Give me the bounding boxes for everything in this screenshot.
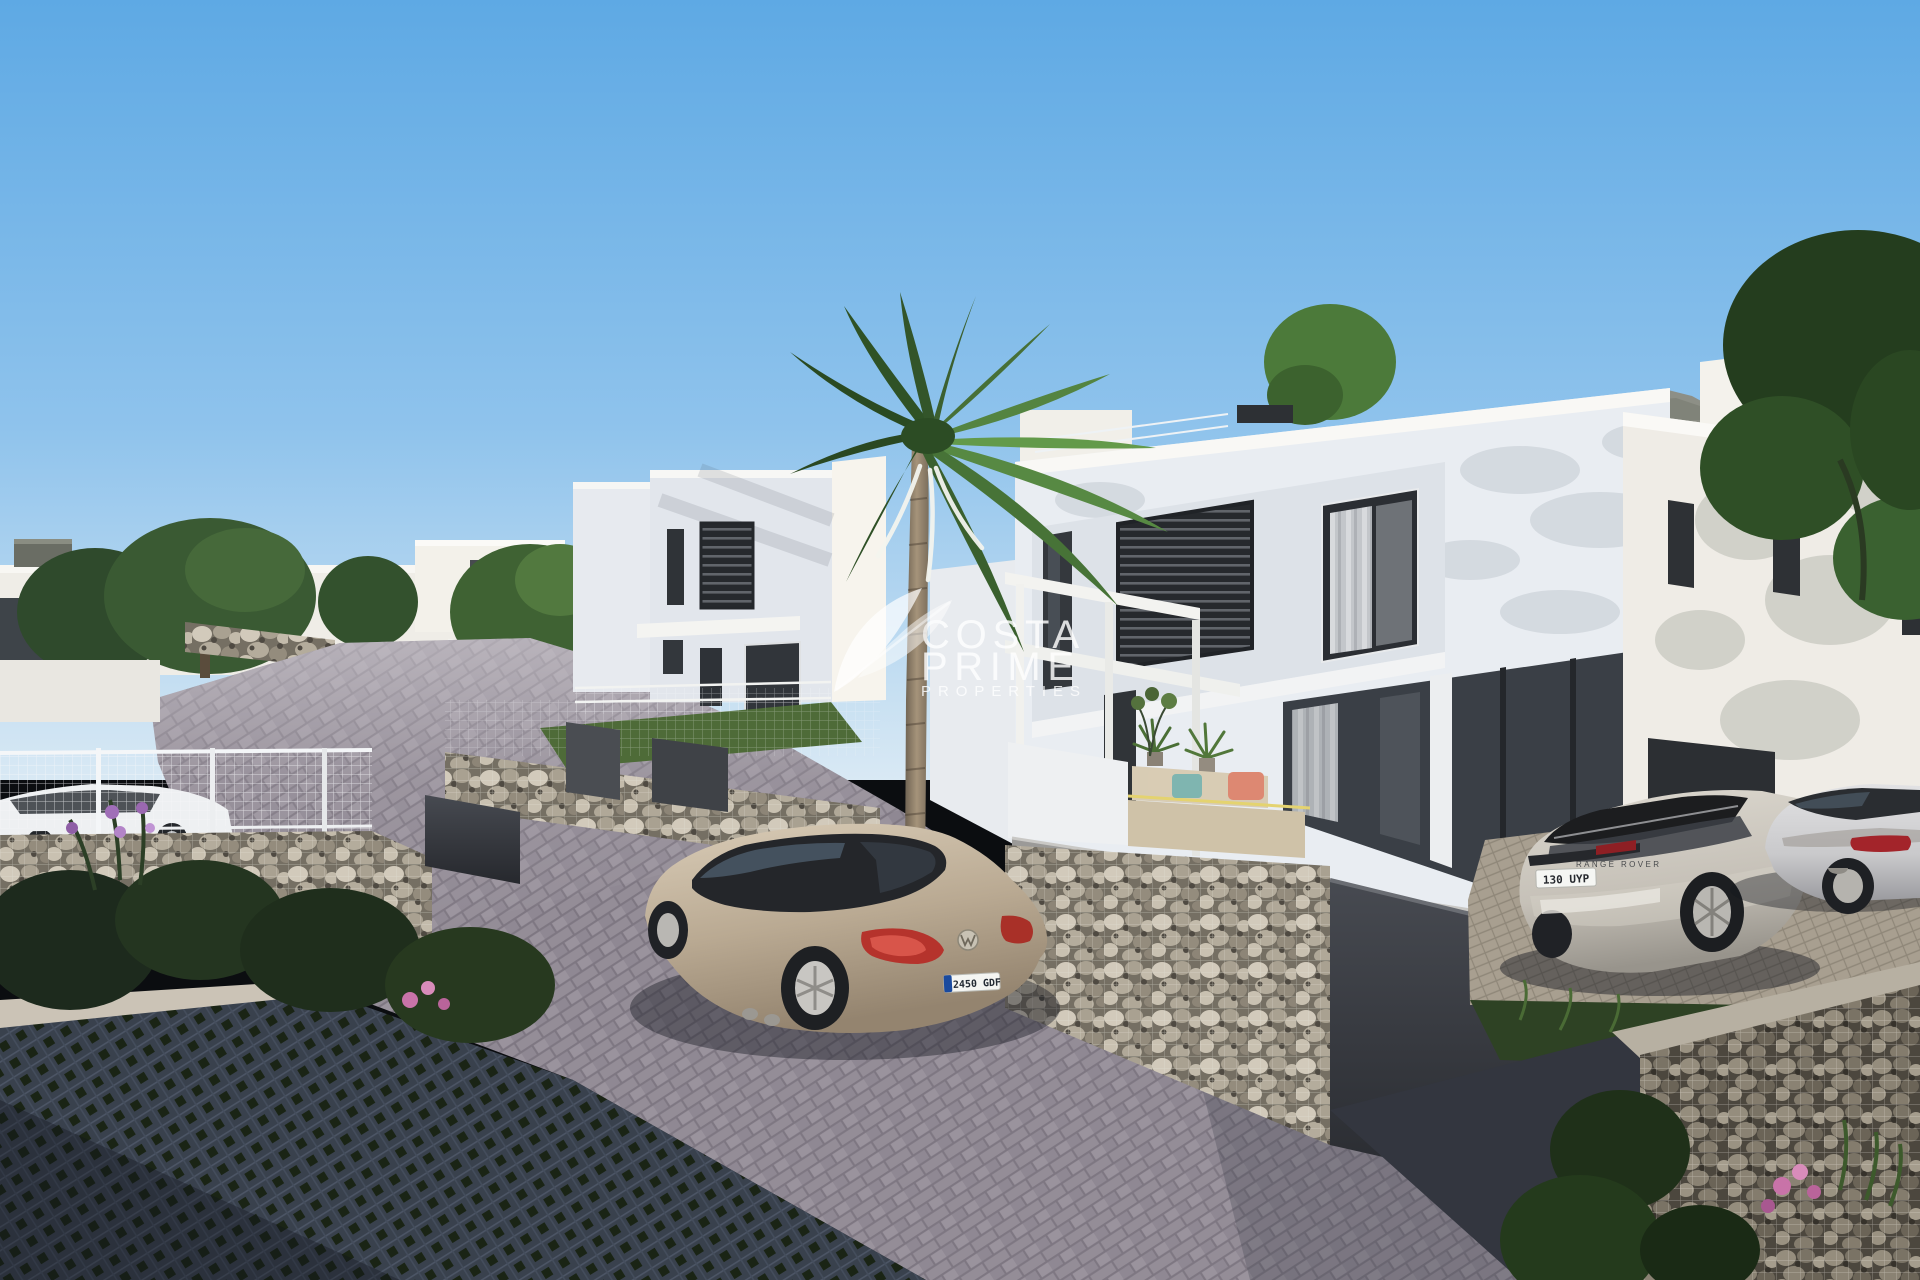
property-render-image: 2450 GDF RANGE ROVER 130 UYP: [0, 0, 1920, 1280]
privacy-fence-panel: [566, 722, 620, 800]
middle-house-louver-window: [701, 523, 753, 608]
wire-mesh-fence: [0, 752, 372, 834]
suv-badge-text: RANGE ROVER: [1576, 860, 1662, 869]
sedan-plate: 2450 GDF: [944, 972, 1002, 992]
window-curtain: [1330, 506, 1372, 654]
middle-house-window: [667, 529, 684, 605]
suv-wheel: [1532, 910, 1572, 958]
roof-vent-louver: [1237, 405, 1293, 423]
watermark-brand-line3: PROPERTIES: [921, 683, 1085, 700]
suv-plate: 130 UYP: [1536, 868, 1597, 888]
far-house-window: [1668, 500, 1694, 588]
sofa-pillow: [1148, 770, 1174, 794]
sofa-pillow-coral: [1228, 772, 1264, 800]
privacy-fence-panel: [652, 738, 728, 812]
villa-louver-window: [1118, 502, 1252, 668]
plate-eu-strip: [944, 975, 953, 992]
sofa-pillow-teal: [1172, 774, 1202, 798]
suv-plate-text: 130 UYP: [1543, 872, 1590, 887]
sedan-car: 2450 GDF: [630, 824, 1060, 1060]
coupe-taillight: [1850, 835, 1911, 852]
